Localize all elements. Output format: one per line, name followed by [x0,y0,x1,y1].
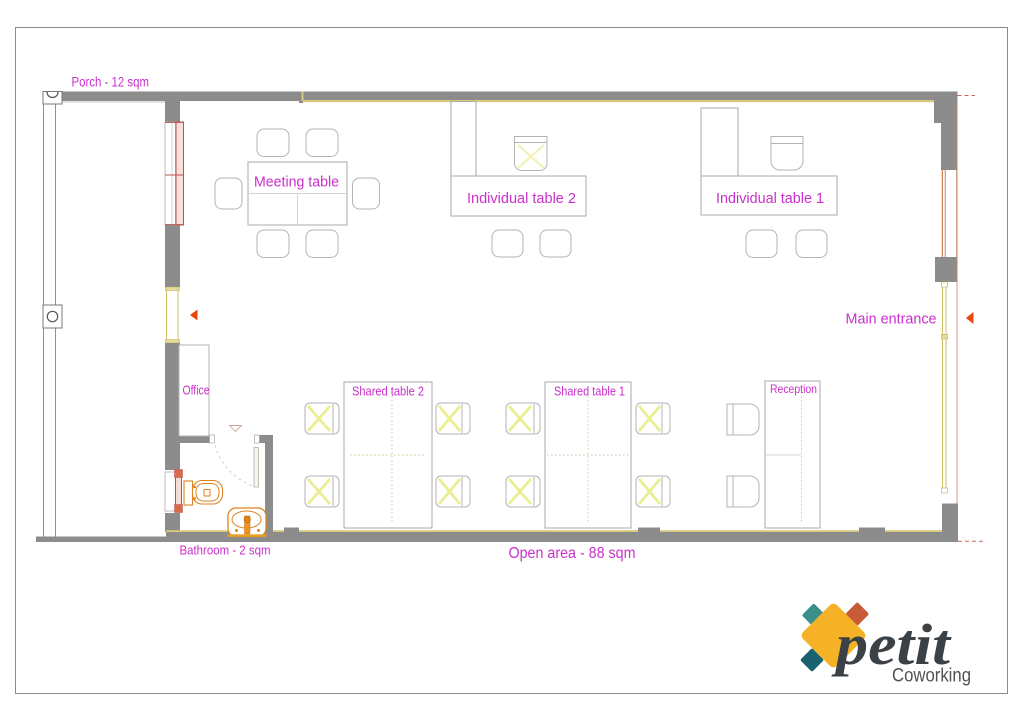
svg-text:Reception: Reception [770,382,817,396]
svg-text:Meeting table: Meeting table [254,174,339,191]
svg-text:Coworking: Coworking [892,665,971,687]
svg-text:Bathroom - 2 sqm: Bathroom - 2 sqm [180,543,271,558]
svg-text:Open area - 88 sqm: Open area - 88 sqm [509,545,636,562]
svg-text:Office: Office [183,384,210,398]
svg-text:Porch - 12 sqm: Porch - 12 sqm [72,75,150,90]
svg-text:Shared table 2: Shared table 2 [352,385,424,399]
svg-text:Main entrance: Main entrance [846,311,937,328]
svg-text:Shared table 1: Shared table 1 [554,385,625,399]
svg-text:Individual table 2: Individual table 2 [467,190,576,207]
svg-text:Individual table 1: Individual table 1 [716,190,824,207]
